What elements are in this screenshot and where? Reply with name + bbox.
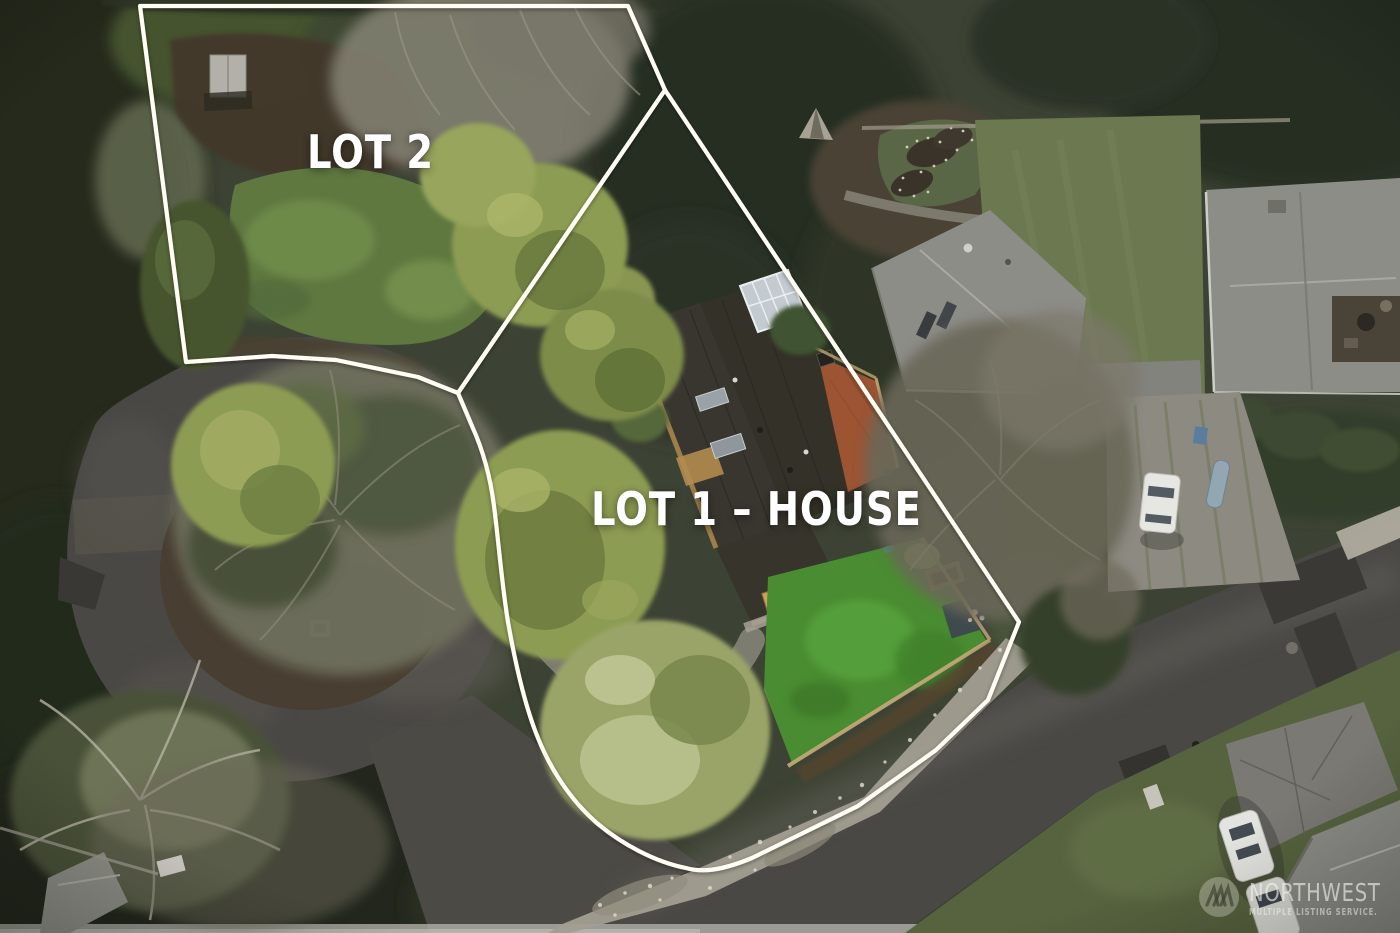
watermark-tagline: MULTIPLE LISTING SERVICE. [1249,908,1378,918]
nwmls-mountains-icon [1196,874,1242,920]
watermark-brand: NORTHWEST [1249,880,1388,905]
nwmls-watermark: NORTHWEST MULTIPLE LISTING SERVICE. [1196,874,1400,920]
lot1-label: LOT 1 – HOUSE [591,486,922,532]
lot2-label: LOT 2 [307,129,434,175]
aerial-photo: LOT 2 LOT 1 – HOUSE NORTHWEST MULTIPLE L… [0,0,1400,933]
aerial-photo-rendering [0,0,1400,933]
